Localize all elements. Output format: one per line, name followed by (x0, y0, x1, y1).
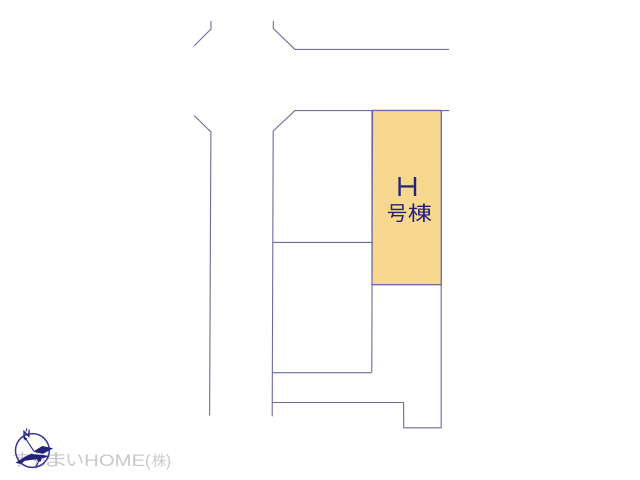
svg-text:HOME: HOME (84, 451, 145, 470)
svg-text:(: ( (145, 452, 151, 470)
svg-text:): ) (166, 452, 172, 470)
